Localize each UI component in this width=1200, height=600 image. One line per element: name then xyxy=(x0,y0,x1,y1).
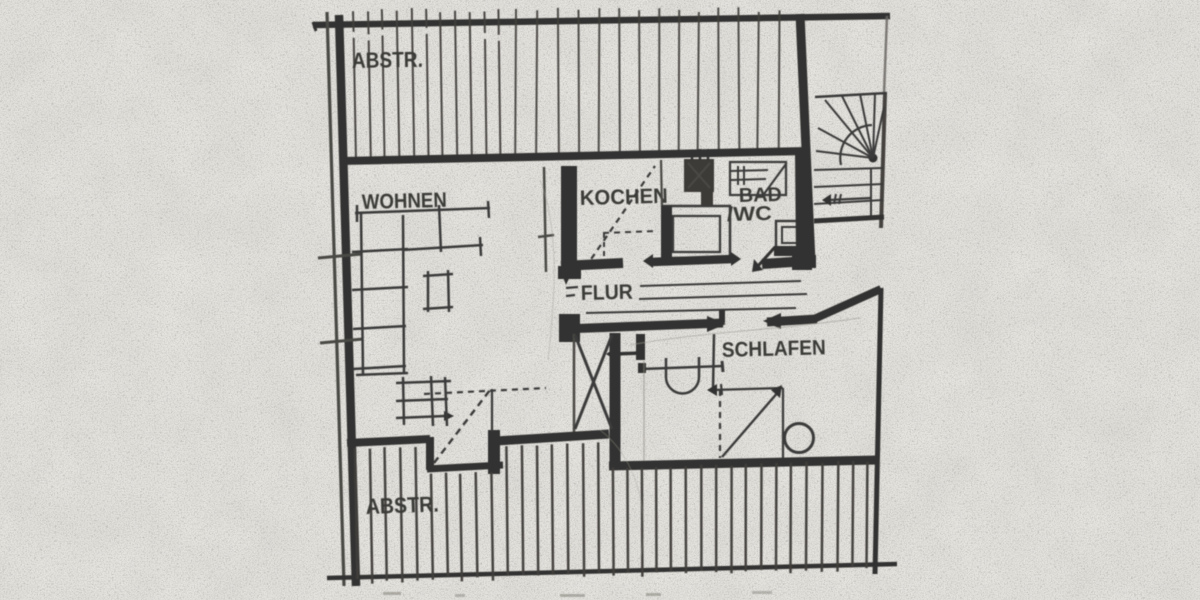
svg-text:KOCHEN: KOCHEN xyxy=(580,185,669,210)
svg-text:SCHLAFEN: SCHLAFEN xyxy=(722,336,827,362)
svg-text:FLUR: FLUR xyxy=(581,281,634,305)
svg-text:ABSTR.: ABSTR. xyxy=(365,491,439,519)
svg-text:/WC: /WC xyxy=(727,203,773,226)
svg-text:ABSTR.: ABSTR. xyxy=(352,47,423,73)
